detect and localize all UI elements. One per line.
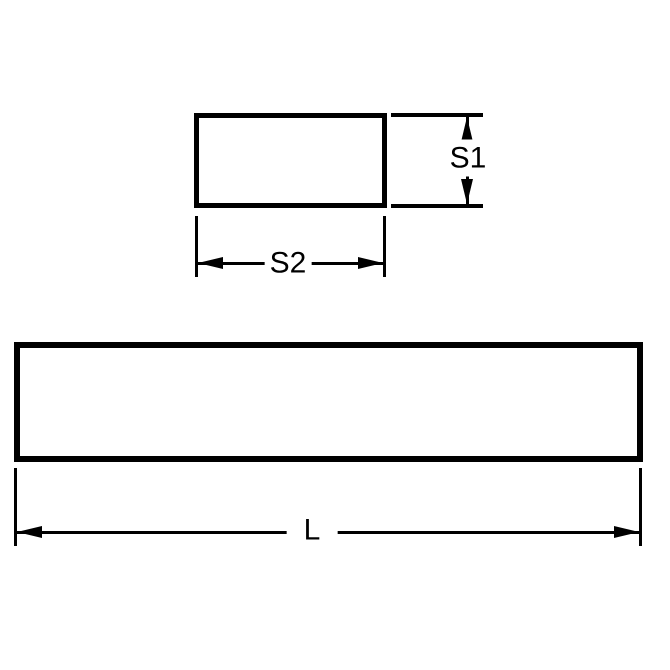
l-extension-line-right — [639, 468, 642, 546]
s1-arrow-up-icon — [461, 117, 473, 142]
l-arrow-right-icon — [614, 526, 639, 538]
side-view-rectangle — [14, 342, 643, 462]
s2-extension-line-right — [383, 216, 386, 277]
s2-dimension-label: S2 — [265, 246, 312, 281]
l-arrow-left-icon — [17, 526, 42, 538]
s1-arrow-down-icon — [461, 179, 473, 204]
cross-section-rectangle — [194, 113, 387, 208]
drawing-canvas: S1 S2 L — [0, 0, 670, 670]
s1-extension-line-bottom — [391, 204, 483, 208]
s1-dimension-label: S1 — [447, 140, 490, 177]
s2-arrow-left-icon — [198, 257, 223, 269]
s2-arrow-right-icon — [358, 257, 383, 269]
l-dimension-label: L — [287, 513, 338, 548]
